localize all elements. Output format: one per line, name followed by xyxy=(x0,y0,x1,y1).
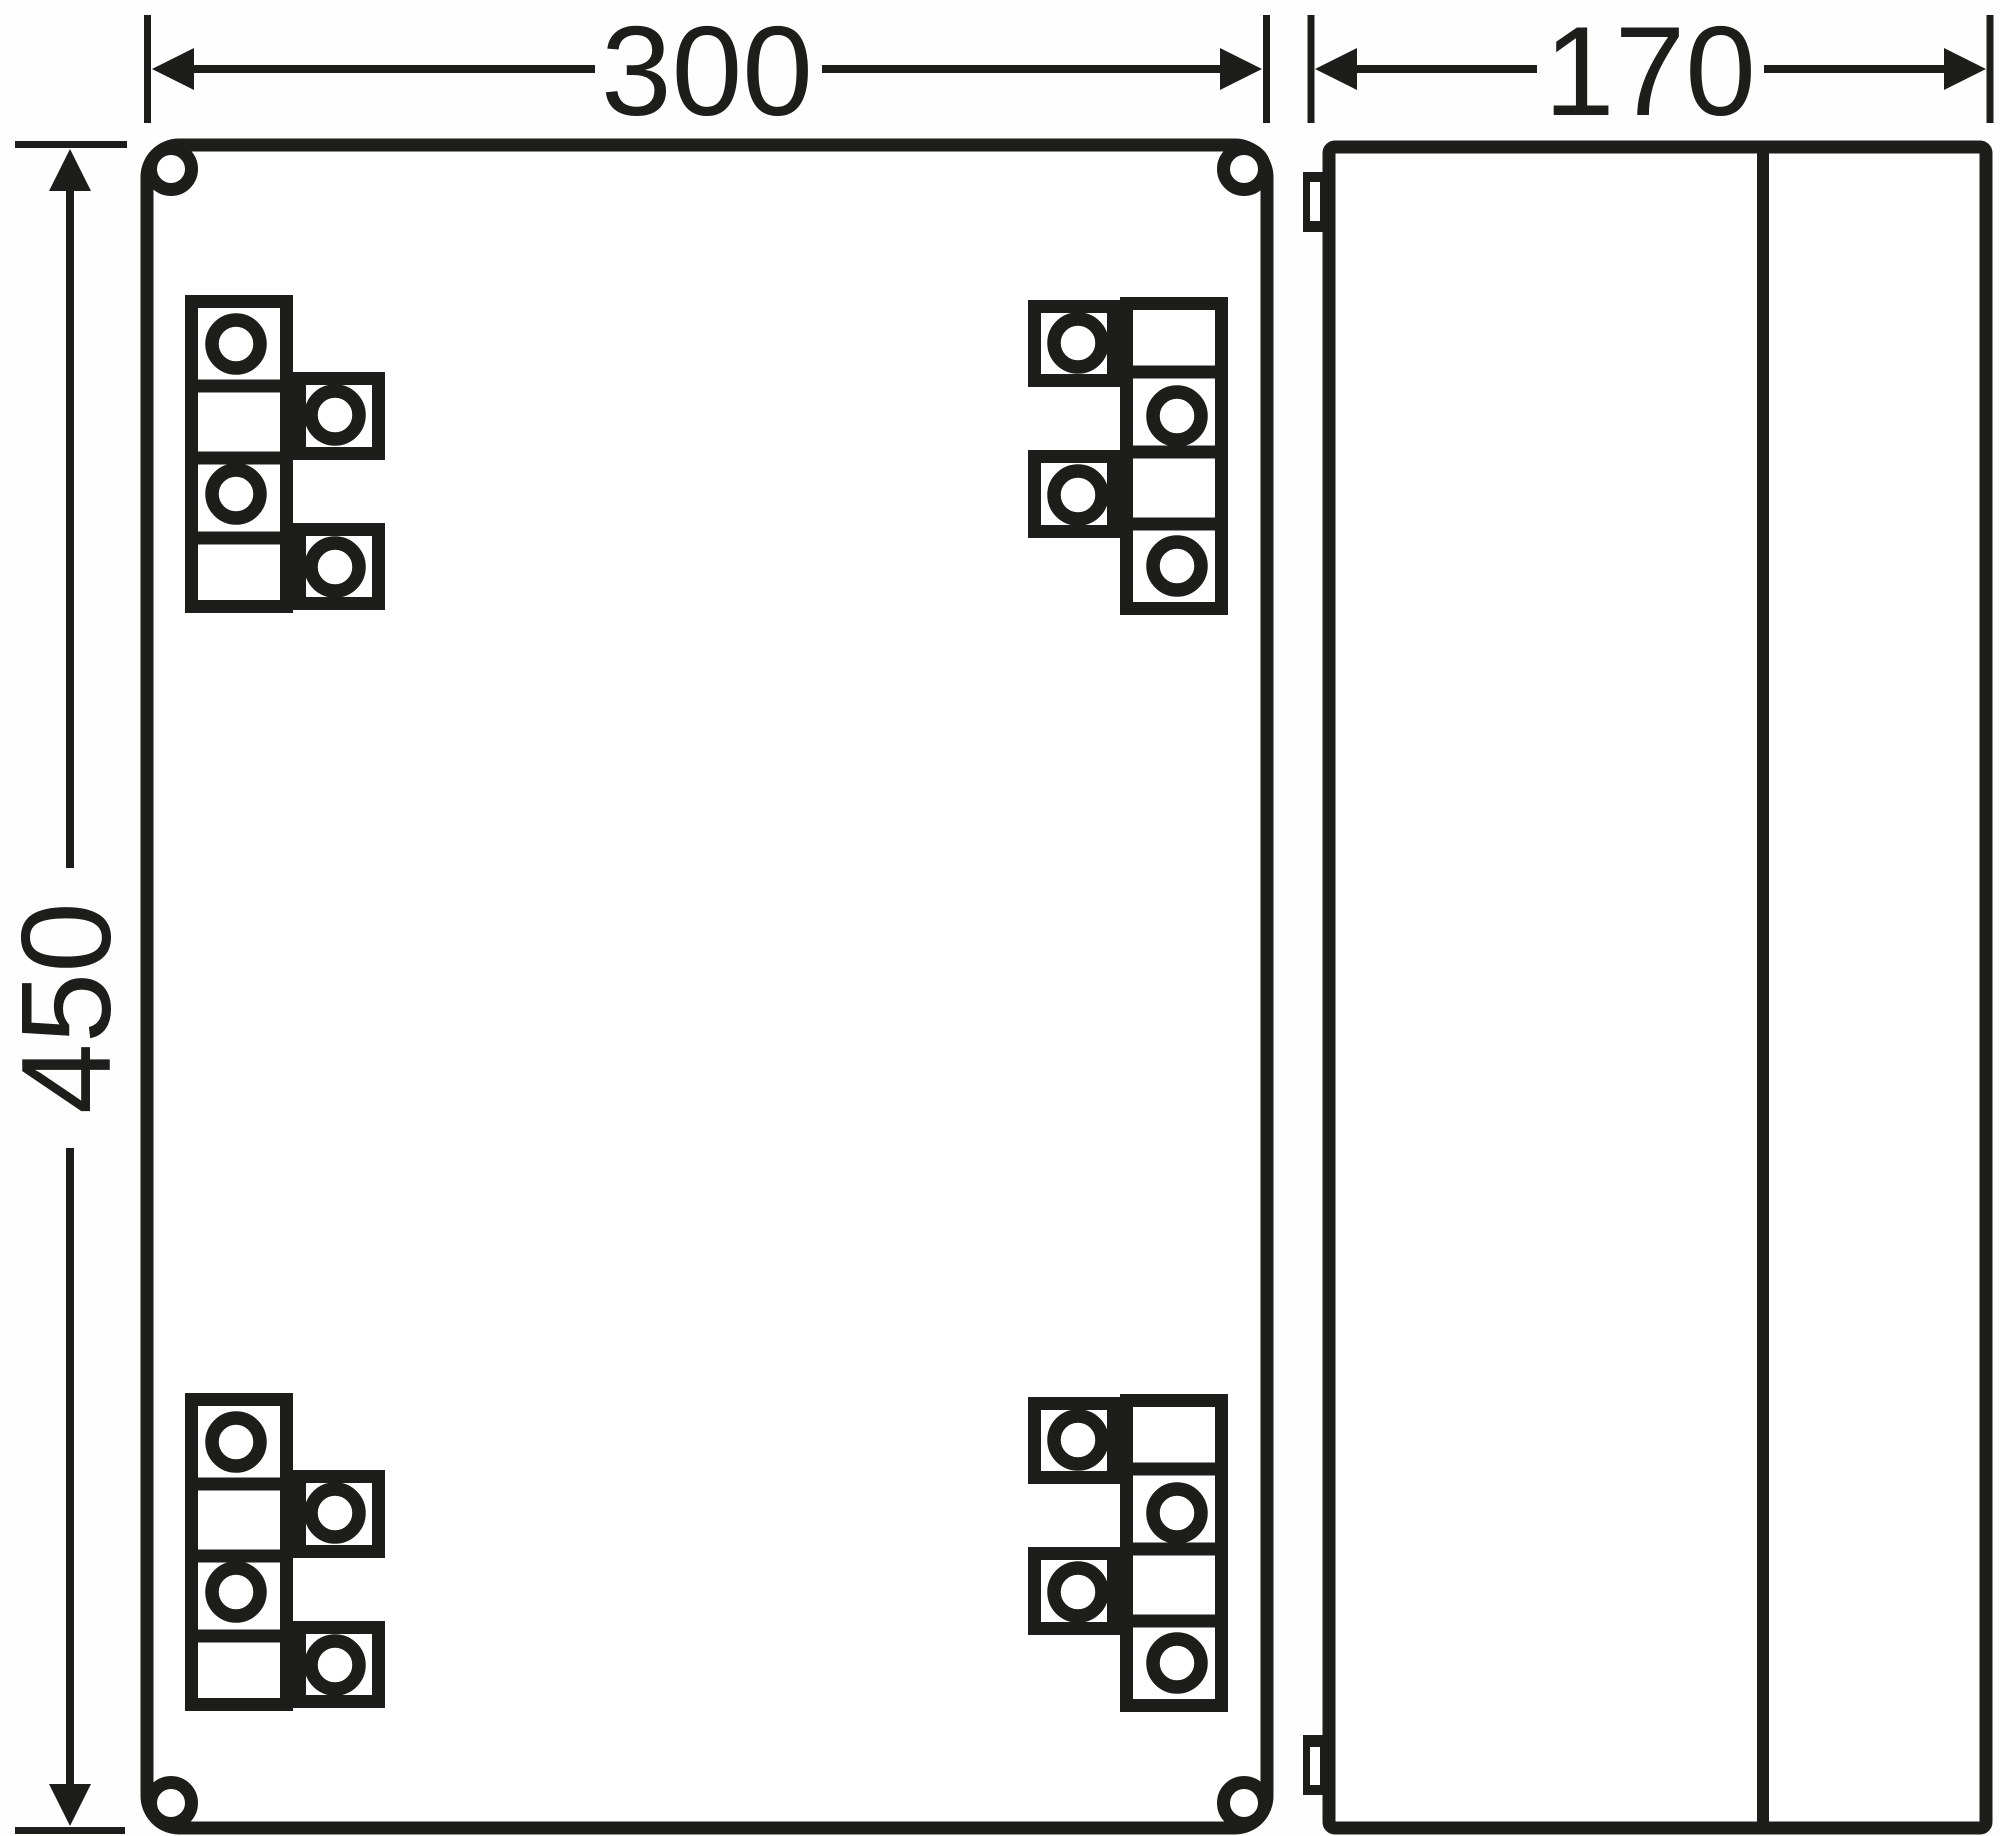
dimension-height-arrow-up xyxy=(49,149,91,191)
corner-screw-bottom-left xyxy=(151,1783,192,1824)
side-view-outline xyxy=(1329,147,1986,1828)
dimension-depth-arrow-right xyxy=(1944,48,1986,90)
dimension-depth-value: 170 xyxy=(1544,0,1756,142)
dimension-width-arrow-left xyxy=(152,48,194,90)
dimension-width-value: 300 xyxy=(601,0,813,142)
dimension-height-value: 450 xyxy=(0,902,137,1114)
front-view xyxy=(147,145,1267,1828)
hinge-tab-top-slot xyxy=(1310,182,1320,221)
technical-drawing-page: 300 170 450 xyxy=(0,0,2000,1836)
corner-screw-bottom-right xyxy=(1224,1783,1265,1824)
dimension-depth: 170 xyxy=(1311,0,1990,142)
hinge-tab-bottom-slot xyxy=(1310,1747,1320,1785)
corner-screw-top-left xyxy=(151,149,192,190)
corner-screw-top-right xyxy=(1224,149,1265,190)
dimension-height: 450 xyxy=(0,145,137,1831)
side-view xyxy=(1303,147,1986,1828)
enclosure-dimension-drawing: 300 170 450 xyxy=(0,0,2000,1836)
dimension-width-arrow-right xyxy=(1220,48,1262,90)
dimension-height-arrow-down xyxy=(49,1784,91,1826)
dimension-width: 300 xyxy=(148,0,1267,142)
dimension-depth-arrow-left xyxy=(1315,48,1357,90)
